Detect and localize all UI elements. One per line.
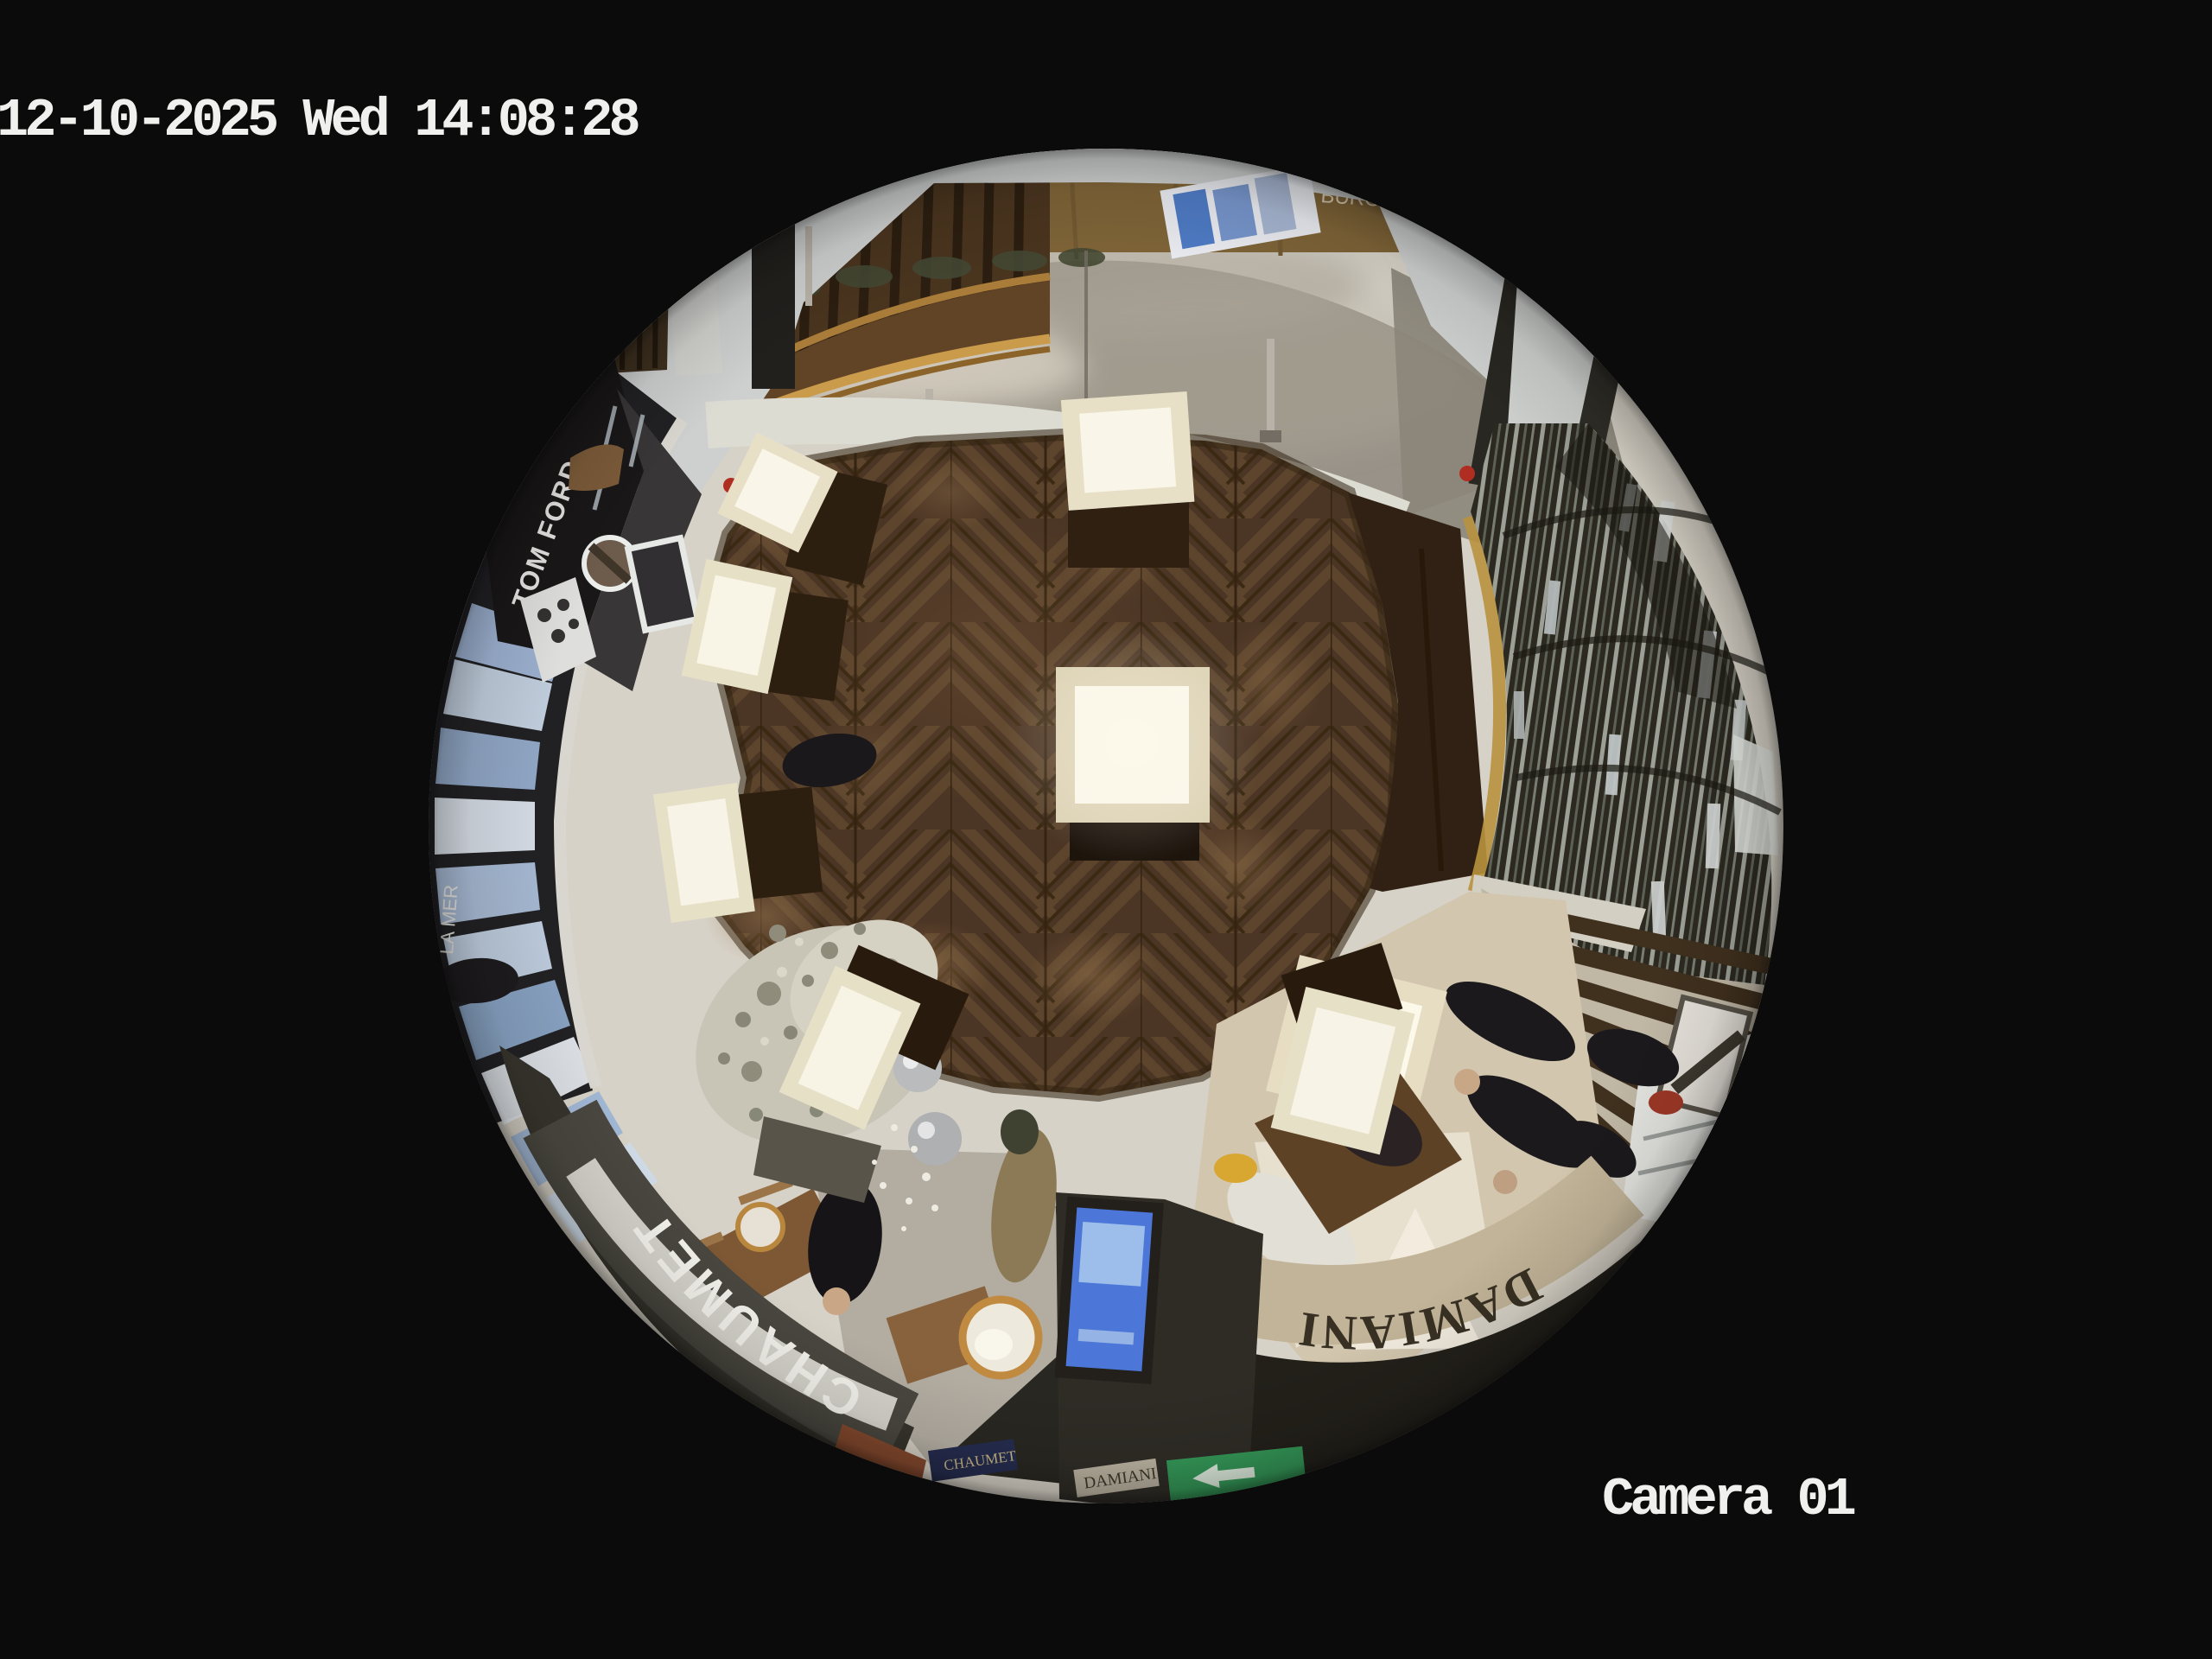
svg-text:Camera 01: Camera 01 [1602,1469,1855,1530]
svg-text:12-10-2025 Wed 14:08:28: 12-10-2025 Wed 14:08:28 [0,90,639,151]
